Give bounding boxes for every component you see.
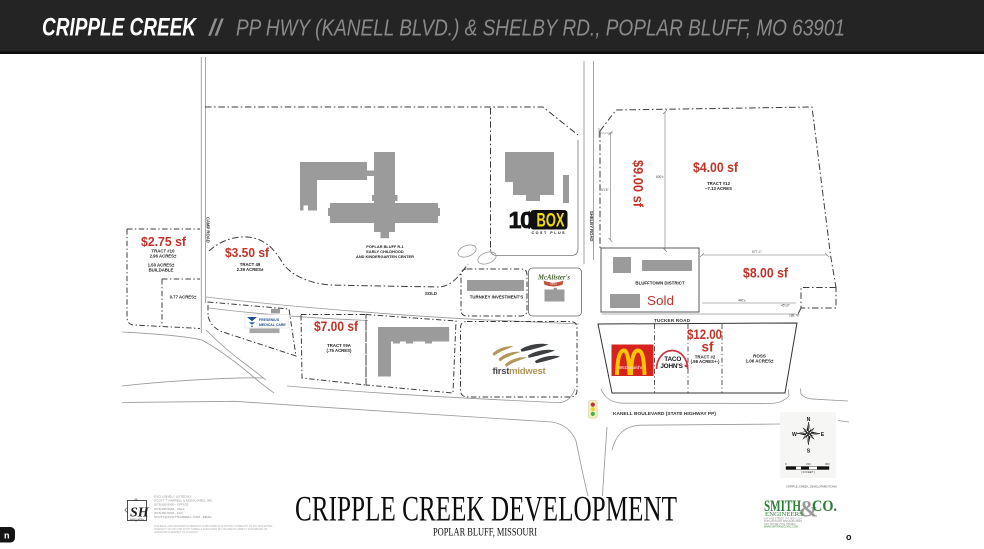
svg-text:BLUFFTOWN DISTRICT: BLUFFTOWN DISTRICT xyxy=(635,281,685,286)
svg-text:1.06 ACRES±: 1.06 ACRES± xyxy=(745,359,774,364)
svg-text:THIS EMAIL AND INFORMATION HER: THIS EMAIL AND INFORMATION HEREWITH IS P… xyxy=(154,525,273,528)
svg-text:TURNKEY INVESTMENT'S: TURNKEY INVESTMENT'S xyxy=(470,295,524,300)
svg-text:o: o xyxy=(846,532,852,542)
svg-text:KANELL BOULEVARD (STATE HIGHWA: KANELL BOULEVARD (STATE HIGHWAY PP) xyxy=(613,411,717,416)
svg-text:ASSOCIATES: ASSOCIATES xyxy=(130,518,144,521)
svg-text:JOHN'S: JOHN'S xyxy=(660,363,683,370)
svg-text:(.98 ACRES+-): (.98 ACRES+-) xyxy=(691,359,720,364)
svg-text:COST PLUS: COST PLUS xyxy=(532,231,567,235)
svg-text:CO.: CO. xyxy=(812,498,837,515)
svg-text:2.96 ACRES±: 2.96 ACRES± xyxy=(150,254,177,259)
svg-text:WARRANTY OF ANY KIND SCOTT FAR: WARRANTY OF ANY KIND SCOTT FARREL & ASSO… xyxy=(154,528,268,531)
svg-text:Sold: Sold xyxy=(647,294,674,308)
svg-text:CRIPPLE CREEK DEVELOPMENT: CRIPPLE CREEK DEVELOPMENT xyxy=(295,489,677,529)
svg-text:CAMP ROAD: CAMP ROAD xyxy=(206,217,211,243)
svg-text:McAlister's: McAlister's xyxy=(537,275,570,282)
svg-text:977'-1": 977'-1" xyxy=(752,250,762,254)
svg-text:FRESENIUS: FRESENIUS xyxy=(259,318,280,322)
svg-text:300: 300 xyxy=(825,462,830,466)
svg-text:firstmidwest: firstmidwest xyxy=(493,366,547,377)
svg-text:POPLAR BLUFF, MISSOURI: POPLAR BLUFF, MISSOURI xyxy=(433,527,537,539)
svg-text:( IN FEET ): ( IN FEET ) xyxy=(801,470,815,474)
svg-text:0.77 ACRES±: 0.77 ACRES± xyxy=(170,295,197,300)
svg-text:CRIPPLE CREEK: CRIPPLE CREEK xyxy=(42,14,197,42)
svg-text:10: 10 xyxy=(509,207,534,233)
svg-text:TUCKER ROAD: TUCKER ROAD xyxy=(654,318,691,323)
svg-text:AND KINDERGARTEN CENTER: AND KINDERGARTEN CENTER xyxy=(356,254,414,259)
svg-text:McDonald's: McDonald's xyxy=(619,365,643,370)
svg-text:$8.00 sf: $8.00 sf xyxy=(743,266,788,281)
svg-text:(.75 ACRES): (.75 ACRES) xyxy=(327,348,352,353)
svg-text:45'10": 45'10" xyxy=(781,304,790,308)
svg-text:S: S xyxy=(807,449,811,455)
svg-text:DELI: DELI xyxy=(551,282,557,286)
svg-text:MEDICAL CARE: MEDICAL CARE xyxy=(259,323,286,327)
svg-text:PP HWY (KANELL BLVD.) & SHELBY: PP HWY (KANELL BLVD.) & SHELBY RD., POPL… xyxy=(236,15,845,41)
svg-text:$4.00 sf: $4.00 sf xyxy=(693,160,738,175)
svg-text:N: N xyxy=(807,417,811,423)
svg-text:188.78': 188.78' xyxy=(789,314,800,318)
svg-text:$3.50 sf: $3.50 sf xyxy=(225,245,270,260)
svg-text:SHELBY ROAD: SHELBY ROAD xyxy=(589,211,594,241)
svg-text:E: E xyxy=(821,432,825,438)
svg-text:150: 150 xyxy=(806,462,811,466)
svg-text:SOLD: SOLD xyxy=(425,291,437,296)
svg-text:CRIPPLE_CREEK_DEVELOPMENT.DWG: CRIPPLE_CREEK_DEVELOPMENT.DWG xyxy=(786,485,837,489)
svg-text:5'1'6": 5'1'6" xyxy=(601,188,609,192)
svg-text:n: n xyxy=(4,531,10,541)
svg-text:W: W xyxy=(792,432,797,438)
svg-text:$9.00 sf: $9.00 sf xyxy=(631,160,646,207)
svg-text:$7.00 sf: $7.00 sf xyxy=(314,318,358,334)
svg-text:~7.13 ACRES: ~7.13 ACRES xyxy=(705,186,732,191)
svg-text:$2.75 sf: $2.75 sf xyxy=(141,234,187,249)
svg-text:2.39 ACRES±: 2.39 ACRES± xyxy=(237,267,264,272)
svg-text:WWW.SMITHANDCOINC.COM: WWW.SMITHANDCOINC.COM xyxy=(764,526,798,529)
svg-text:BUILDABLE: BUILDABLE xyxy=(149,268,174,273)
svg-text:440'±: 440'± xyxy=(738,299,746,303)
svg-text:sf: sf xyxy=(702,340,715,355)
svg-text:600'±: 600'± xyxy=(656,175,664,179)
svg-text:BOX: BOX xyxy=(537,211,565,232)
svg-text:OMISSIONS IN RESPECT TO ACCURA: OMISSIONS IN RESPECT TO ACCURACY xyxy=(154,531,199,534)
svg-text:TACO: TACO xyxy=(664,356,681,363)
svg-text:SCOTT@SCOTTFARRELL.COM - EMAIL: SCOTT@SCOTTFARRELL.COM - EMAIL xyxy=(154,515,212,519)
